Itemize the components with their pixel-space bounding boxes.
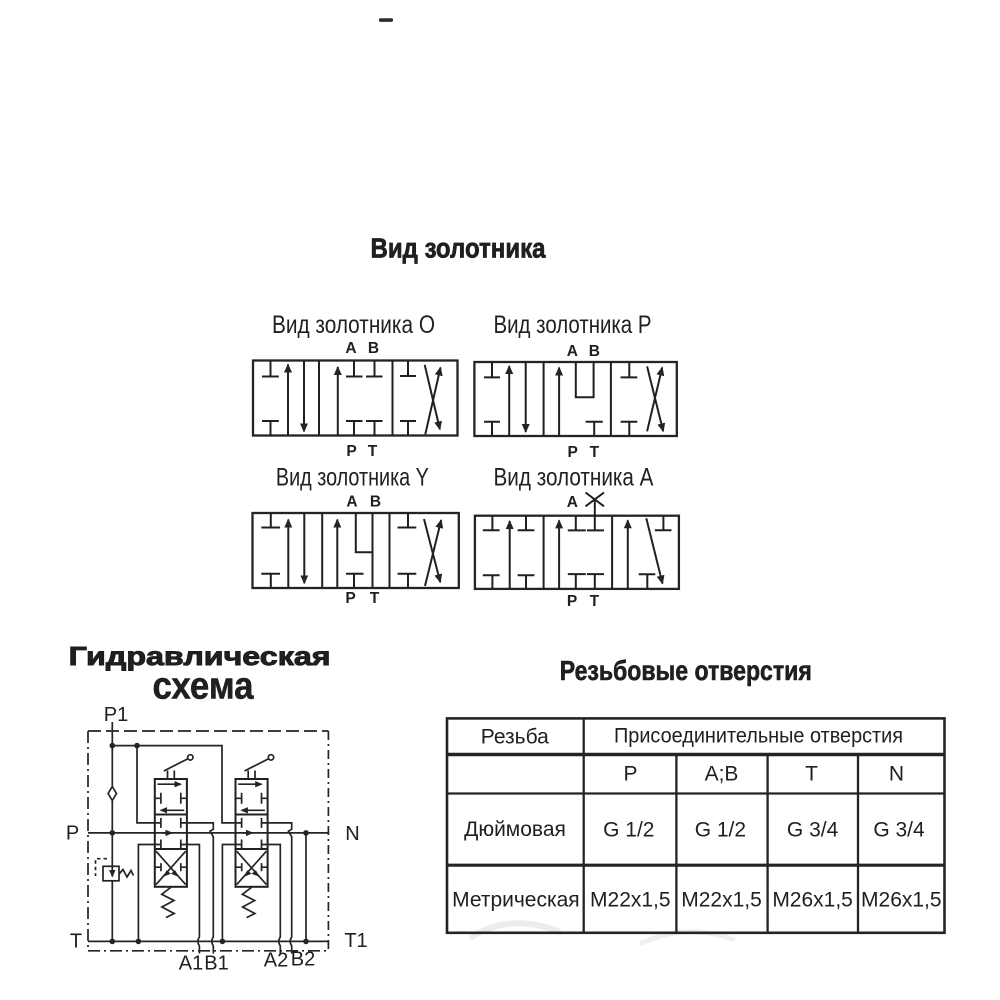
svg-text:A: A bbox=[567, 494, 578, 511]
svg-text:N: N bbox=[889, 763, 904, 786]
svg-text:P: P bbox=[346, 443, 356, 460]
svg-text:Вид золотника: Вид золотника bbox=[371, 233, 546, 264]
svg-text:Вид золотника Y: Вид золотника Y bbox=[276, 464, 429, 492]
svg-text:Метрическая: Метрическая bbox=[452, 889, 580, 912]
svg-text:Вид золотника А: Вид золотника А bbox=[494, 464, 654, 492]
svg-text:T: T bbox=[805, 763, 818, 786]
svg-text:A2: A2 bbox=[264, 950, 288, 972]
svg-text:G 3/4: G 3/4 bbox=[873, 819, 925, 842]
svg-text:B: B bbox=[370, 494, 381, 511]
svg-text:A: A bbox=[567, 343, 578, 360]
svg-text:М26х1,5: М26х1,5 bbox=[861, 889, 942, 912]
svg-text:P1: P1 bbox=[104, 704, 128, 726]
svg-text:A: A bbox=[346, 494, 357, 511]
svg-text:Резьба: Резьба bbox=[481, 726, 549, 749]
svg-text:P: P bbox=[345, 590, 355, 607]
svg-text:Вид золотника Р: Вид золотника Р bbox=[494, 311, 652, 339]
svg-text:М22х1,5: М22х1,5 bbox=[681, 889, 762, 912]
svg-text:N: N bbox=[345, 823, 359, 845]
svg-text:схема: схема bbox=[153, 666, 255, 708]
svg-text:T: T bbox=[590, 593, 600, 610]
svg-text:T: T bbox=[70, 931, 82, 953]
svg-text:T1: T1 bbox=[344, 930, 367, 952]
svg-text:Присоединительные отверстия: Присоединительные отверстия bbox=[614, 725, 903, 748]
svg-text:B2: B2 bbox=[291, 949, 315, 971]
svg-text:P: P bbox=[66, 823, 79, 845]
svg-text:Резьбовые отверстия: Резьбовые отверстия bbox=[560, 655, 812, 686]
svg-text:T: T bbox=[370, 590, 380, 607]
svg-text:T: T bbox=[368, 443, 378, 460]
svg-text:G 3/4: G 3/4 bbox=[787, 819, 839, 842]
svg-text:Вид золотника О: Вид золотника О bbox=[272, 311, 435, 339]
svg-text:М22х1,5: М22х1,5 bbox=[590, 889, 671, 912]
svg-text:A1: A1 bbox=[179, 953, 203, 975]
svg-text:P: P bbox=[567, 593, 577, 610]
svg-text:B: B bbox=[368, 340, 379, 357]
svg-text:B: B bbox=[589, 343, 600, 360]
svg-text:М26х1,5: М26х1,5 bbox=[772, 889, 853, 912]
svg-text:P: P bbox=[568, 444, 578, 461]
svg-text:G 1/2: G 1/2 bbox=[603, 819, 654, 842]
svg-text:A;B: A;B bbox=[705, 763, 739, 786]
svg-text:G 1/2: G 1/2 bbox=[695, 819, 746, 842]
svg-text:T: T bbox=[590, 444, 600, 461]
svg-text:A: A bbox=[345, 340, 356, 357]
svg-text:P: P bbox=[623, 763, 637, 786]
svg-text:B1: B1 bbox=[204, 953, 228, 975]
svg-text:Дюймовая: Дюймовая bbox=[464, 818, 566, 841]
